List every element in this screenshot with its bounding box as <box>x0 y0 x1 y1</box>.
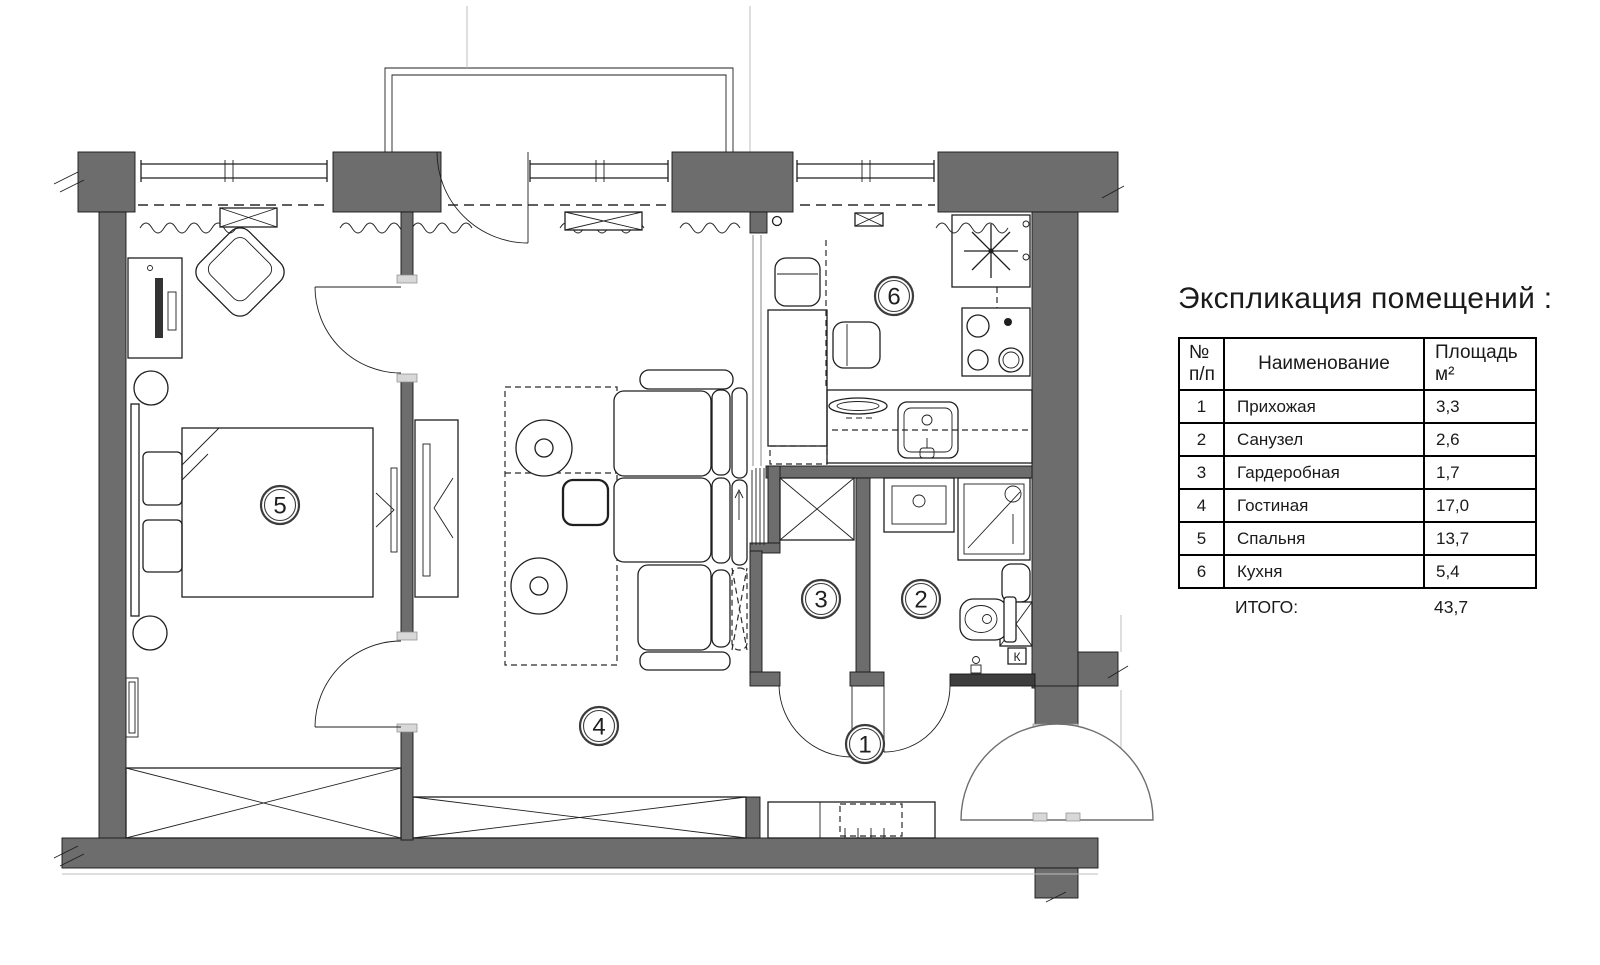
row-num: 6 <box>1179 555 1224 588</box>
floor-plan-sheet: К 1 2 3 4 5 6 Экспликация помещений : <box>0 0 1600 965</box>
k-marker-label: К <box>1014 650 1021 664</box>
armchair <box>191 223 290 322</box>
entry-door <box>961 724 1153 821</box>
row-num: 2 <box>1179 423 1224 456</box>
shoe-cabinet <box>768 802 935 838</box>
room-number: 5 <box>273 493 286 520</box>
shower <box>958 478 1030 560</box>
legend-row: 4 Гостиная 17,0 <box>1179 489 1536 522</box>
row-name: Кухня <box>1224 555 1424 588</box>
legend-panel: Экспликация помещений : №п/п Наименовани… <box>1178 282 1558 621</box>
living-furniture <box>413 370 747 838</box>
row-name: Гардеробная <box>1224 456 1424 489</box>
kitchen-counter <box>826 240 1032 463</box>
legend-row: 5 Спальня 13,7 <box>1179 522 1536 555</box>
row-area: 5,4 <box>1424 555 1536 588</box>
room-label-6: 6 <box>875 277 913 315</box>
legend-row: 1 Прихожая 3,3 <box>1179 390 1536 423</box>
stove <box>962 308 1030 376</box>
bedroom-furniture <box>126 223 401 838</box>
vent-box <box>565 212 642 230</box>
round-chair <box>516 420 572 476</box>
room-label-5: 5 <box>261 486 299 524</box>
coffee-table <box>563 480 608 525</box>
tap-symbol <box>971 657 981 674</box>
water-heater <box>1002 564 1030 602</box>
row-area: 3,3 <box>1424 390 1536 423</box>
bathroom-door <box>884 686 950 752</box>
row-num: 5 <box>1179 522 1224 555</box>
bedroom-door-top <box>315 287 401 373</box>
window-kitchen <box>797 160 934 182</box>
legend-table: №п/п Наименование Площадь м² 1 Прихожая … <box>1178 337 1537 589</box>
total-label: ИТОГО: <box>1235 597 1298 618</box>
balcony-door <box>437 152 528 243</box>
desk-stool <box>134 371 168 405</box>
wardrobe-door <box>779 686 852 757</box>
bedroom-closet <box>126 768 401 838</box>
legend-row: 2 Санузел 2,6 <box>1179 423 1536 456</box>
living-closet <box>413 797 746 838</box>
bathroom-fixtures: К <box>884 478 1032 673</box>
room-number: 6 <box>887 284 900 311</box>
hob-dish <box>829 398 887 418</box>
legend-title: Экспликация помещений : <box>1178 282 1558 316</box>
room-label-2: 2 <box>902 580 940 618</box>
radiator <box>126 678 138 737</box>
bar-stool <box>833 322 880 368</box>
wardrobe-shelving <box>780 478 854 540</box>
legend-header-row: №п/п Наименование Площадь м² <box>1179 338 1536 390</box>
pipe-symbol <box>773 217 782 226</box>
balcony <box>385 6 750 152</box>
row-area: 13,7 <box>1424 522 1536 555</box>
vent-box <box>220 208 277 227</box>
header-area: Площадь м² <box>1424 338 1536 390</box>
bedside-table <box>133 616 167 650</box>
legend-row: 3 Гардеробная 1,7 <box>1179 456 1536 489</box>
room-number: 1 <box>858 732 871 759</box>
total-value: 43,7 <box>1434 597 1468 618</box>
room-label-3: 3 <box>802 580 840 618</box>
row-num: 1 <box>1179 390 1224 423</box>
desk <box>128 258 182 358</box>
room-number: 2 <box>914 587 927 614</box>
row-name: Спальня <box>1224 522 1424 555</box>
windows <box>138 160 1008 233</box>
toilet <box>960 597 1016 642</box>
kitchen-furniture <box>768 215 1032 464</box>
bar-table <box>768 310 827 464</box>
k-marker: К <box>1008 648 1026 664</box>
bar-stool <box>775 258 820 306</box>
header-name: Наименование <box>1224 338 1424 390</box>
room-number: 3 <box>814 587 827 614</box>
vent-box <box>855 213 883 226</box>
window-bedroom <box>141 160 327 182</box>
room-label-1: 1 <box>846 725 884 763</box>
sofa <box>614 370 747 670</box>
fridge <box>952 215 1030 287</box>
row-area: 1,7 <box>1424 456 1536 489</box>
window-living <box>530 160 668 182</box>
bed <box>131 404 373 616</box>
tv-cabinet <box>415 420 458 597</box>
mirror <box>376 468 397 552</box>
row-area: 17,0 <box>1424 489 1536 522</box>
row-name: Гостиная <box>1224 489 1424 522</box>
room-label-4: 4 <box>580 707 618 745</box>
row-num: 3 <box>1179 456 1224 489</box>
header-num: №п/п <box>1179 338 1224 390</box>
room-number: 4 <box>592 714 605 741</box>
row-area: 2,6 <box>1424 423 1536 456</box>
legend-totals: ИТОГО: 43,7 <box>1178 597 1558 621</box>
round-chair <box>511 558 567 614</box>
legend-row: 6 Кухня 5,4 <box>1179 555 1536 588</box>
bathroom-sink <box>884 478 954 532</box>
row-name: Прихожая <box>1224 390 1424 423</box>
bedroom-door-bottom <box>315 641 401 727</box>
row-num: 4 <box>1179 489 1224 522</box>
row-name: Санузел <box>1224 423 1424 456</box>
